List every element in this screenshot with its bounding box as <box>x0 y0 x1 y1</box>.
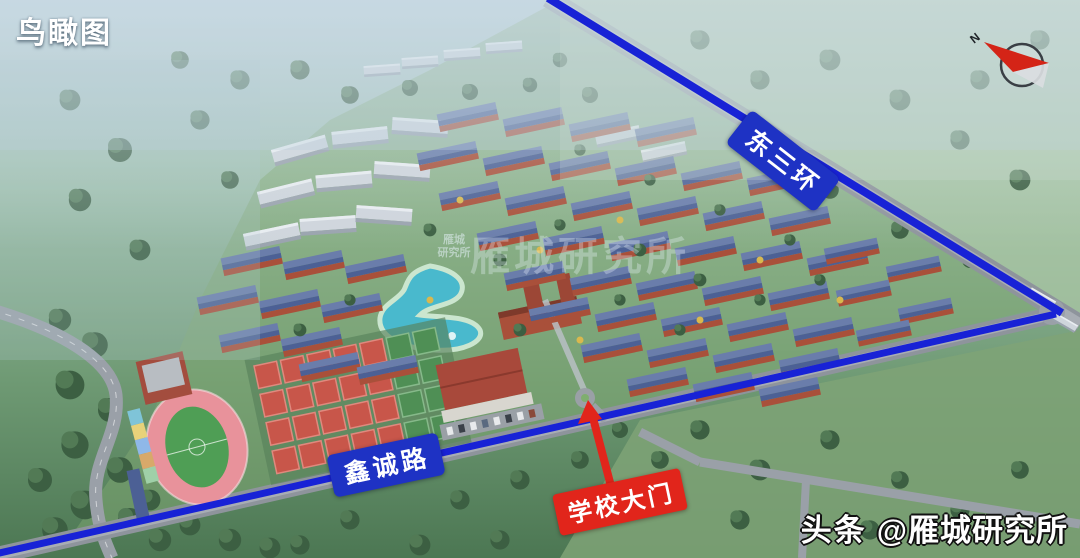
toutiao-credit: 头条@雁城研究所 <box>801 505 1068 550</box>
watermark-logo: 雁城 研究所 <box>436 234 472 260</box>
toutiao-brand: 头条 <box>801 513 867 548</box>
credit-handle: @雁城研究所 <box>877 513 1068 548</box>
aerial-rendering: N 鸟瞰图 东三环 鑫诚路 学校大门 雁城 研究所 雁城研究所 头条@雁城研究所 <box>0 0 1080 558</box>
watermark-text: 雁城研究所 <box>470 224 690 282</box>
watermark-logo-line2: 研究所 <box>438 247 471 259</box>
watermark-logo-line1: 雁城 <box>443 234 465 246</box>
view-title: 鸟瞰图 <box>16 8 112 52</box>
